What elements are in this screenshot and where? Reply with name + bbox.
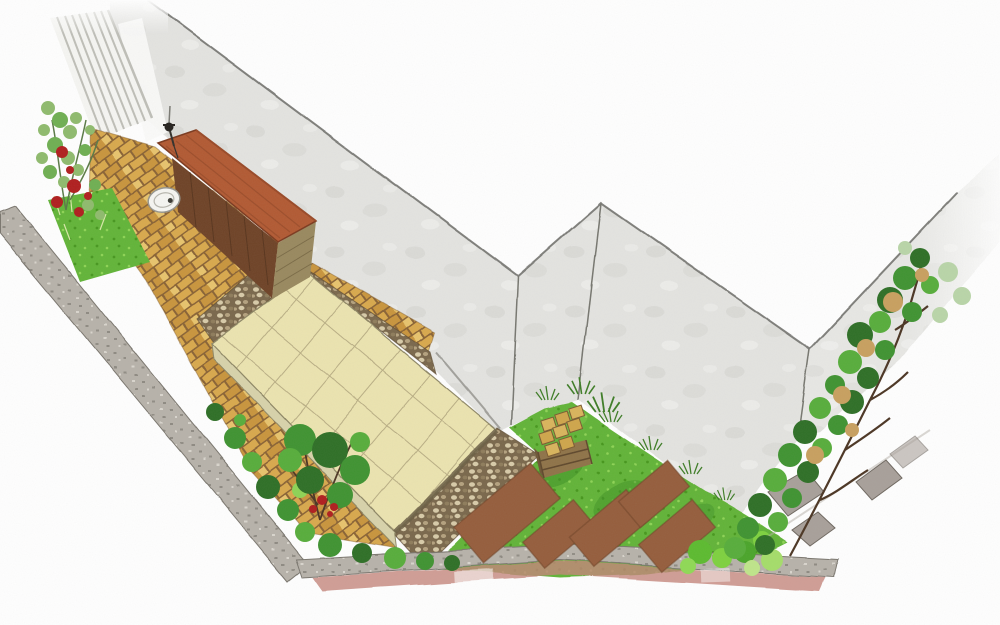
foliage-blob xyxy=(763,468,787,492)
leaf-blob xyxy=(43,165,57,179)
rose-bloom xyxy=(56,146,68,158)
shrub-blob xyxy=(296,466,324,494)
tan-foliage-blob xyxy=(857,339,875,357)
leaf-blob xyxy=(82,199,94,211)
shrub-blob xyxy=(340,455,370,485)
shrub-blob xyxy=(206,403,224,421)
rose-bloom xyxy=(74,207,84,217)
stepping-stone xyxy=(856,460,902,500)
foliage-blob xyxy=(724,537,746,559)
leaf-blob xyxy=(85,125,95,135)
shrub-blob xyxy=(295,522,315,542)
foliage-blob xyxy=(893,266,917,290)
berry xyxy=(327,511,333,517)
garden-illustration xyxy=(0,0,1000,625)
shrub-blob xyxy=(350,432,370,452)
foliage-blob xyxy=(737,517,759,539)
foliage-blob xyxy=(748,493,772,517)
tan-foliage-blob xyxy=(845,423,859,437)
sage-foliage-blob xyxy=(938,262,958,282)
shrub-blob xyxy=(242,452,262,472)
berry xyxy=(330,503,338,511)
shrub-blob xyxy=(224,427,246,449)
shrub-blob xyxy=(277,499,299,521)
foliage-blob xyxy=(869,311,891,333)
foliage-blob xyxy=(838,350,862,374)
tap-valve xyxy=(165,123,174,132)
leaf-blob xyxy=(63,125,77,139)
foliage-blob xyxy=(797,461,819,483)
rose-bloom xyxy=(67,179,81,193)
foliage-blob xyxy=(828,415,848,435)
tap-wall-pipe xyxy=(169,106,170,124)
tan-foliage-blob xyxy=(915,268,929,282)
sage-foliage-blob xyxy=(953,287,971,305)
shrub-blob xyxy=(744,560,760,576)
shrub-blob xyxy=(278,448,302,472)
leaf-blob xyxy=(70,112,82,124)
sage-foliage-blob xyxy=(898,241,912,255)
foliage-blob xyxy=(809,397,831,419)
shrub-blob xyxy=(256,475,280,499)
shrub-blob xyxy=(444,555,460,571)
leaf-blob xyxy=(52,112,68,128)
shrub-blob xyxy=(318,533,342,557)
rose-bloom xyxy=(51,196,63,208)
leaf-blob xyxy=(95,210,105,220)
shrub-blob xyxy=(234,414,246,426)
stepping-stone xyxy=(890,436,928,468)
rose-bloom xyxy=(84,192,92,200)
leaf-blob xyxy=(89,179,101,191)
foliage-blob xyxy=(768,512,788,532)
leaf-blob xyxy=(79,144,91,156)
fence-top-fade xyxy=(38,0,168,34)
rose-bloom xyxy=(66,166,74,174)
foliage-blob xyxy=(778,443,802,467)
foliage-blob xyxy=(782,488,802,508)
shrub-blob xyxy=(384,547,406,569)
shrub-blob xyxy=(416,552,434,570)
tan-foliage-blob xyxy=(833,386,851,404)
tan-foliage-blob xyxy=(806,446,824,464)
sage-foliage-blob xyxy=(932,307,948,323)
leaf-blob xyxy=(38,124,50,136)
foliage-blob xyxy=(902,302,922,322)
shrub-blob xyxy=(352,543,372,563)
foliage-blob xyxy=(910,248,930,268)
shrub-blob xyxy=(327,482,353,508)
leaf-blob xyxy=(41,101,55,115)
berry xyxy=(309,505,317,513)
tan-foliage-blob xyxy=(883,292,903,312)
pink-strip-gap xyxy=(455,569,494,585)
foliage-blob xyxy=(875,340,895,360)
pink-strip-gap xyxy=(700,567,730,582)
leaf-blob xyxy=(36,152,48,164)
foliage-blob xyxy=(755,535,775,555)
shrub-blob xyxy=(680,558,696,574)
berry xyxy=(317,495,327,505)
foliage-blob xyxy=(857,367,879,389)
foliage-blob xyxy=(793,420,817,444)
